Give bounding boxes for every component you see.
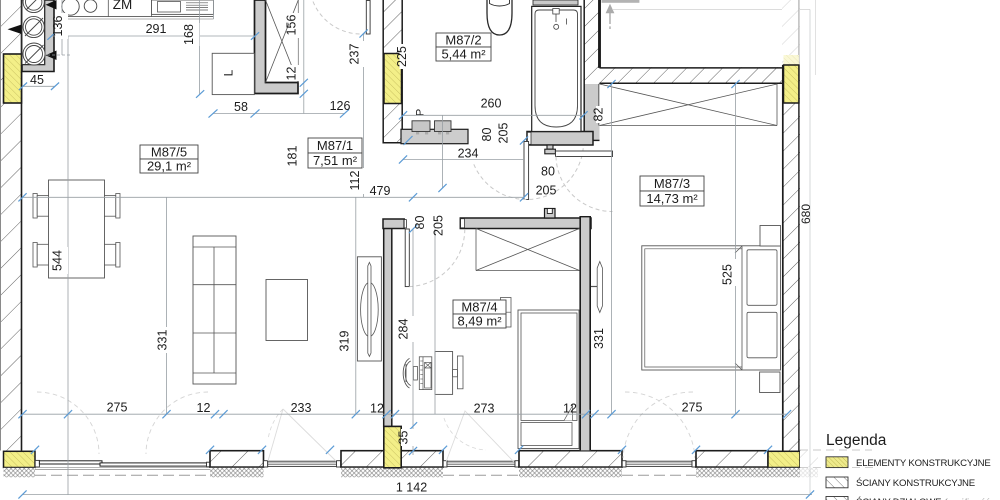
svg-text:ŚCIANY KONSTRUKCYJNE: ŚCIANY KONSTRUKCYJNE	[856, 477, 975, 489]
svg-text:M87/3: M87/3	[654, 176, 690, 191]
svg-text:136: 136	[51, 16, 65, 37]
svg-text:8,49 m²: 8,49 m²	[457, 314, 502, 329]
svg-text:M87/1: M87/1	[317, 138, 353, 153]
svg-text:45: 45	[30, 73, 44, 87]
svg-text:319: 319	[338, 331, 352, 352]
svg-text:205: 205	[432, 215, 446, 236]
svg-text:680: 680	[799, 204, 813, 224]
svg-text:12: 12	[563, 402, 577, 416]
svg-text:7,51 m²: 7,51 m²	[313, 153, 358, 168]
svg-text:126: 126	[330, 99, 351, 113]
svg-text:12: 12	[285, 67, 299, 81]
svg-text:80: 80	[413, 216, 427, 230]
svg-text:275: 275	[107, 401, 128, 415]
svg-text:331: 331	[592, 328, 606, 349]
svg-text:260: 260	[481, 97, 502, 111]
svg-text:291: 291	[146, 22, 167, 36]
svg-text:205: 205	[497, 123, 511, 144]
svg-text:273: 273	[474, 402, 495, 416]
svg-text:82: 82	[592, 108, 606, 122]
svg-text:544: 544	[51, 250, 65, 271]
svg-text:112: 112	[348, 170, 362, 190]
svg-text:35: 35	[397, 431, 411, 445]
svg-text:331: 331	[156, 330, 170, 351]
svg-text:5,44 m²: 5,44 m²	[441, 47, 486, 62]
svg-text:156: 156	[285, 15, 299, 36]
svg-text:14,73 m²: 14,73 m²	[646, 191, 698, 206]
svg-text:L: L	[222, 69, 236, 76]
svg-text:237: 237	[348, 44, 362, 65]
svg-text:1 142: 1 142	[396, 481, 427, 495]
svg-text:284: 284	[397, 319, 411, 340]
svg-text:12: 12	[197, 401, 211, 415]
svg-text:275: 275	[682, 401, 703, 415]
svg-text:ŚCIANY DZIAŁOWE (możliwość zmi: ŚCIANY DZIAŁOWE (możliwość zmian)	[856, 496, 1000, 500]
svg-text:233: 233	[291, 401, 312, 415]
svg-text:181: 181	[286, 146, 300, 167]
svg-text:M87/2: M87/2	[445, 33, 481, 48]
svg-text:525: 525	[721, 264, 735, 285]
svg-text:225: 225	[395, 46, 409, 67]
svg-text:M87/4: M87/4	[461, 300, 497, 315]
svg-text:Legenda: Legenda	[826, 432, 887, 449]
svg-text:205: 205	[536, 184, 557, 198]
svg-text:234: 234	[458, 147, 479, 161]
svg-text:ZM: ZM	[113, 0, 133, 12]
svg-text:ELEMENTY KONSTRUKCYJNE: ELEMENTY KONSTRUKCYJNE	[856, 458, 991, 469]
svg-text:29,1 m²: 29,1 m²	[147, 159, 192, 174]
svg-text:80: 80	[480, 128, 494, 142]
svg-text:58: 58	[234, 100, 248, 114]
svg-text:12: 12	[370, 402, 384, 416]
svg-text:M87/5: M87/5	[151, 145, 187, 160]
svg-text:80: 80	[541, 165, 555, 179]
svg-text:479: 479	[370, 184, 391, 198]
svg-text:168: 168	[182, 24, 196, 45]
